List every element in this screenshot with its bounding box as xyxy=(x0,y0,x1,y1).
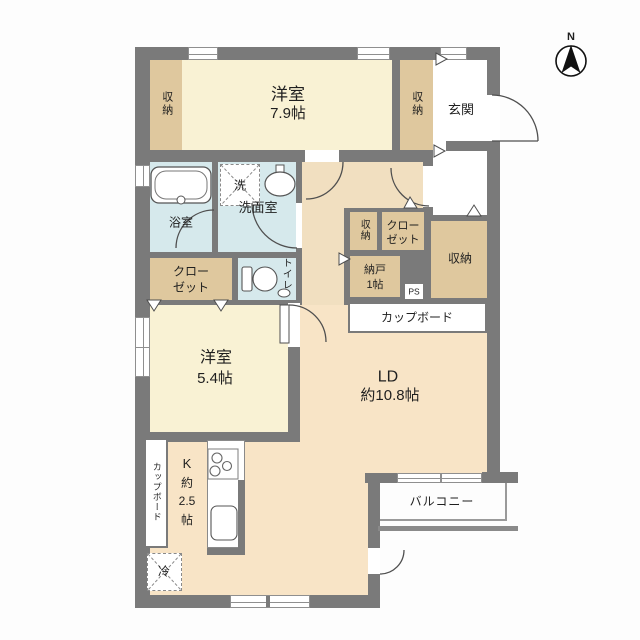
closet-left-door-marker-1 xyxy=(147,300,161,311)
washroom-label: 洗面室 xyxy=(238,201,277,215)
living-dining-name: LD xyxy=(378,370,398,387)
closet-left-line2: ゼット xyxy=(173,282,209,295)
kitchen-label: K 約 2.5 帖 xyxy=(179,456,196,528)
entrance-door-arc xyxy=(492,95,538,141)
nando-door-marker xyxy=(339,253,350,265)
floor-plan: 洋室 7.9帖 収納 収納 玄関 浴室 洗 洗面室 クロー ゼット トイレ 収納… xyxy=(0,0,640,640)
storage-mid-label: 収納 xyxy=(358,219,369,241)
refrigerator-label: 冷 xyxy=(158,566,170,579)
kitchen-sink-icon xyxy=(211,506,237,540)
bedroom2-door-leaf xyxy=(280,305,289,343)
bedroom2-size: 5.4帖 xyxy=(197,371,233,387)
stove-burners-icon xyxy=(208,449,238,479)
bedroom1-door-arc xyxy=(306,162,343,199)
storage-top-left-label: 収納 xyxy=(160,91,172,117)
nando-name: 納戸 xyxy=(364,265,386,277)
north-arrow-icon xyxy=(556,45,586,76)
bedroom1-size: 7.9帖 xyxy=(270,106,306,122)
bedroom2-door-arc xyxy=(289,305,326,342)
bathtub-icon xyxy=(151,167,211,204)
kitchen-label-num: 2.5 xyxy=(179,494,196,508)
kitchen-label-yaku: 約 xyxy=(181,474,193,491)
storage-top-right-label: 収納 xyxy=(410,91,422,117)
cupboard-left-label: カップボード xyxy=(151,462,160,522)
storage-top-right-door-marker xyxy=(436,53,447,65)
balcony-label: バルコニー xyxy=(410,496,475,509)
living-dining-size: 約10.8帖 xyxy=(360,388,419,404)
storage-right-door-marker xyxy=(467,205,481,216)
kitchen-label-jo: 帖 xyxy=(181,511,193,528)
bathroom-label: 浴室 xyxy=(169,217,193,230)
cupboard-top-label: カップボード xyxy=(381,312,453,325)
closet-mid-line1: クロー xyxy=(387,221,420,233)
entrance-label: 玄関 xyxy=(448,103,474,117)
toilet-label: トイレ xyxy=(280,258,291,291)
bedroom1-name: 洋室 xyxy=(271,86,305,104)
kitchen-label-k: K xyxy=(183,456,192,471)
entrance-stub-door-marker xyxy=(434,145,445,157)
closet-left-door-marker-2 xyxy=(214,300,228,311)
compass-north-label: N xyxy=(567,32,575,44)
closet-left-line1: クロー xyxy=(173,266,209,279)
service-door-arc xyxy=(380,550,404,574)
storage-right-label: 収納 xyxy=(448,253,472,266)
nando-size: 1帖 xyxy=(366,280,383,292)
washing-machine-label: 洗 xyxy=(234,180,246,193)
pipe-space-label: PS xyxy=(408,288,419,297)
bedroom2-name: 洋室 xyxy=(200,351,232,368)
washbasin-icon xyxy=(265,165,295,196)
plan-symbols-layer xyxy=(0,0,640,640)
closet-mid-line2: ゼット xyxy=(387,235,420,247)
